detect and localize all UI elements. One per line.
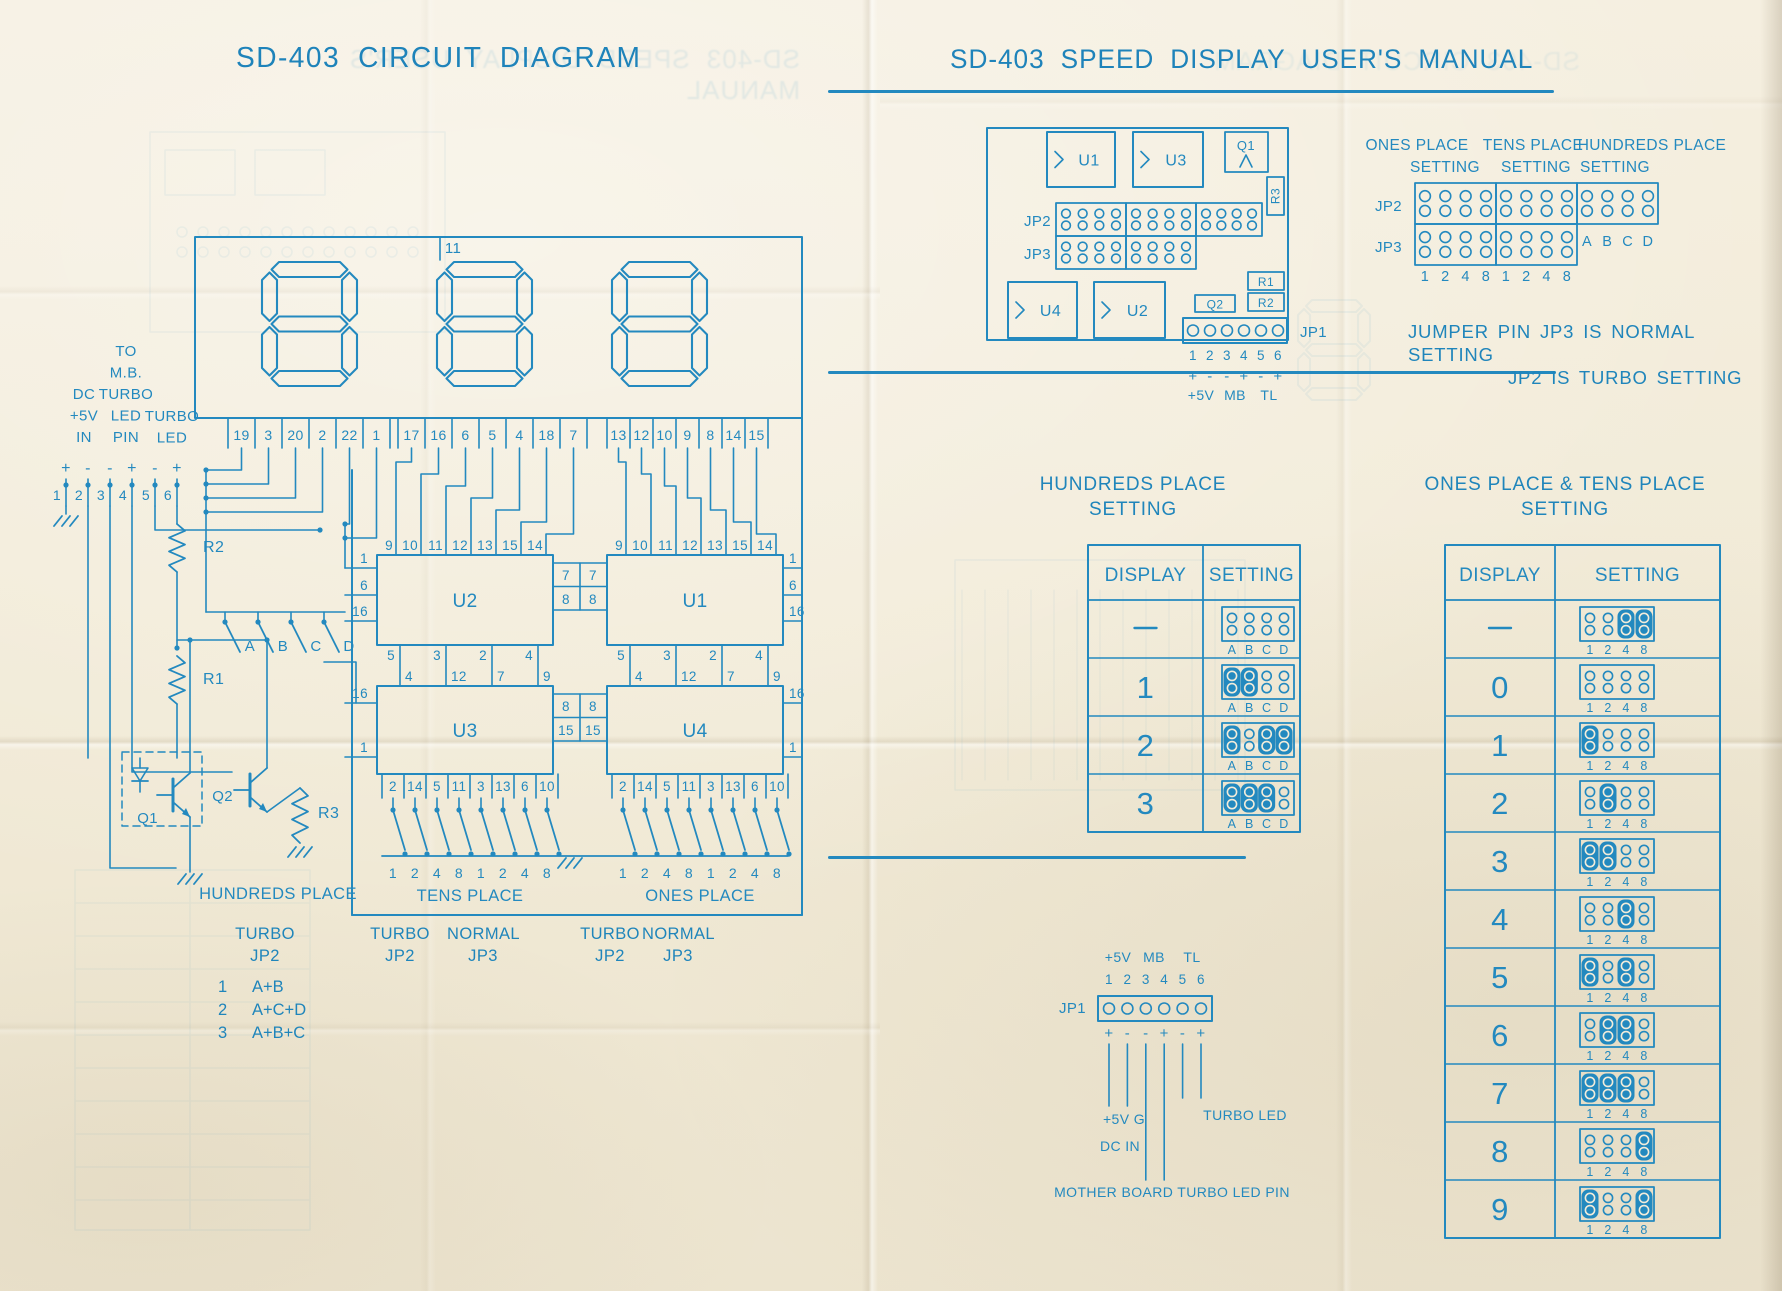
junction-dot bbox=[63, 482, 68, 487]
ic-pin-number: 3 bbox=[477, 779, 485, 794]
pin-hole bbox=[1062, 254, 1071, 263]
pin-hole bbox=[1440, 205, 1451, 216]
component-label-r2: R2 bbox=[203, 539, 224, 556]
pin-hole bbox=[1460, 191, 1471, 202]
jp1d-5vg-label: +5V G bbox=[1103, 1111, 1145, 1127]
pin-bit-label: C bbox=[1262, 759, 1271, 773]
map-header: SETTING bbox=[1410, 159, 1480, 176]
jp1d-polarity: - bbox=[1180, 1025, 1185, 1042]
shape bbox=[546, 448, 574, 555]
board-ic-label: U4 bbox=[1040, 303, 1061, 320]
shape bbox=[612, 327, 627, 376]
outline bbox=[1056, 203, 1126, 236]
display-digit: 3 bbox=[1491, 844, 1509, 879]
diagram-label: LED bbox=[111, 408, 141, 425]
jp1d-pin-number: 1 bbox=[1105, 972, 1113, 987]
shape bbox=[342, 273, 357, 322]
map-abcd-label: B bbox=[1602, 234, 1612, 250]
ic-pin-number: 12 bbox=[452, 538, 468, 553]
outline bbox=[1580, 781, 1654, 815]
pin-hole bbox=[1501, 205, 1512, 216]
display-digit: 6 bbox=[1491, 1018, 1509, 1053]
pin-bit-label: A bbox=[1228, 759, 1237, 773]
pin-bit-label: 4 bbox=[1622, 1165, 1629, 1179]
pin-bit-label: 2 bbox=[1604, 1049, 1611, 1063]
pin-hole bbox=[1639, 800, 1648, 809]
board-jp1-polarity: + bbox=[1273, 368, 1282, 385]
pin-bit-label: A bbox=[1228, 643, 1237, 657]
pin-hole bbox=[1622, 205, 1633, 216]
pin-hole bbox=[1159, 1003, 1170, 1014]
board-layout-diagram: U1U3U4U2Q1R3JP2JP3Q2R1R2JP1123456+--+-++… bbox=[987, 128, 1327, 403]
display-digit: 9 bbox=[1491, 1192, 1509, 1227]
pin-hole bbox=[1202, 221, 1211, 230]
pin-hole bbox=[1062, 209, 1071, 218]
jp1d-polarity: - bbox=[1125, 1025, 1130, 1042]
junction-dot bbox=[174, 645, 179, 650]
switch-bit-label: 1 bbox=[707, 865, 715, 881]
pin-bit-label: C bbox=[1262, 817, 1271, 831]
display-digit: 4 bbox=[1491, 902, 1509, 937]
pin-hole bbox=[1078, 242, 1087, 251]
shape bbox=[517, 273, 532, 322]
jp1d-label: JP1 bbox=[1059, 1000, 1086, 1017]
pin-bit-label: D bbox=[1279, 643, 1288, 657]
display-pin-number: 22 bbox=[341, 427, 357, 443]
pin-hole bbox=[345, 227, 355, 237]
connector-pin-number: 4 bbox=[119, 487, 127, 503]
pin-hole bbox=[1262, 684, 1271, 693]
pin-bit-label: 2 bbox=[1604, 817, 1611, 831]
ic-pin-number: 6 bbox=[521, 779, 529, 794]
diagram-label: TURBO bbox=[99, 386, 154, 403]
pin-hole bbox=[219, 247, 229, 257]
wire bbox=[54, 516, 62, 526]
jp1d-pin-number: 2 bbox=[1123, 972, 1131, 987]
diagram-label: +5V bbox=[70, 408, 98, 425]
pin-hole bbox=[1639, 787, 1648, 796]
board-jp1-polarity: - bbox=[1207, 368, 1212, 385]
pin-bit-label: 2 bbox=[1604, 1223, 1611, 1237]
shape bbox=[1306, 344, 1362, 356]
pin-hole bbox=[324, 227, 334, 237]
diagram-label: PIN bbox=[113, 429, 139, 446]
pin-hole bbox=[1217, 221, 1226, 230]
wire bbox=[296, 847, 304, 857]
pin-hole bbox=[1239, 325, 1250, 336]
pin-bit-label: 2 bbox=[1604, 933, 1611, 947]
wire bbox=[667, 810, 679, 850]
board-jp1-polarity: + bbox=[1239, 368, 1248, 385]
ic-pin-number: 6 bbox=[751, 779, 759, 794]
shape bbox=[692, 273, 707, 322]
map-bit-label: 4 bbox=[1542, 269, 1550, 285]
display-pin-number: 20 bbox=[287, 427, 303, 443]
wire bbox=[304, 847, 312, 857]
pin-hole bbox=[1639, 845, 1648, 854]
pin-hole bbox=[1481, 191, 1492, 202]
pin-hole bbox=[1602, 205, 1613, 216]
pin-hole bbox=[1585, 1032, 1594, 1041]
pin-hole bbox=[1585, 626, 1594, 635]
pin-hole bbox=[1585, 1135, 1594, 1144]
pin-hole bbox=[303, 227, 313, 237]
pin-hole bbox=[1639, 1032, 1648, 1041]
ic-pin-number: 15 bbox=[585, 723, 601, 738]
diagram-artwork-layer: 111932022211716654187131210981415DC+5VIN… bbox=[0, 0, 1782, 1291]
jp1d-polarity: + bbox=[1196, 1025, 1205, 1042]
pin-hole bbox=[1062, 242, 1071, 251]
shape bbox=[206, 448, 269, 484]
pin-hole bbox=[1521, 191, 1532, 202]
shape bbox=[132, 768, 148, 781]
wire bbox=[525, 810, 537, 850]
outline bbox=[1577, 183, 1658, 224]
display-pin-number: 4 bbox=[515, 427, 523, 443]
component-label-r1: R1 bbox=[203, 671, 224, 688]
switch-bit-label: 4 bbox=[751, 865, 759, 881]
shape bbox=[169, 656, 185, 704]
pin-hole bbox=[1222, 325, 1233, 336]
diagram-label: LED bbox=[157, 430, 187, 447]
outline bbox=[1126, 236, 1196, 269]
pin-hole bbox=[1585, 613, 1594, 622]
wire bbox=[291, 622, 306, 652]
ic-pin-number: 7 bbox=[497, 669, 505, 684]
pin-hole bbox=[1585, 1019, 1594, 1028]
shape bbox=[345, 448, 350, 524]
outline bbox=[1056, 236, 1126, 269]
switch-bit-label: 2 bbox=[411, 865, 419, 881]
table-header: DISPLAY bbox=[1105, 565, 1187, 586]
pin-hole bbox=[1621, 671, 1630, 680]
board-ic-label: U1 bbox=[1078, 153, 1099, 170]
switch-bit-label: 8 bbox=[773, 865, 781, 881]
board-jp1-net: MB bbox=[1224, 387, 1246, 403]
pin-hole bbox=[1460, 205, 1471, 216]
pin-hole bbox=[1420, 246, 1431, 257]
outline bbox=[1580, 1013, 1654, 1047]
pin-bit-label: 8 bbox=[1640, 759, 1647, 773]
board-jp1-pin: 3 bbox=[1223, 348, 1231, 363]
shape bbox=[447, 371, 523, 386]
pin-hole bbox=[1078, 221, 1087, 230]
table-header: SETTING bbox=[1209, 565, 1294, 586]
board-jp1-net: +5V bbox=[1188, 387, 1215, 403]
pin-hole bbox=[240, 247, 250, 257]
outline bbox=[165, 150, 235, 195]
pin-hole bbox=[1639, 1090, 1648, 1099]
wire bbox=[481, 810, 493, 850]
map-bit-label: 1 bbox=[1421, 269, 1429, 285]
map-bit-label: 8 bbox=[1482, 269, 1490, 285]
map-bit-label: 1 bbox=[1502, 269, 1510, 285]
wire bbox=[689, 810, 701, 850]
outline bbox=[255, 150, 325, 195]
pin-bit-label: 2 bbox=[1604, 991, 1611, 1005]
ic-label: U2 bbox=[452, 591, 477, 612]
ic-pin-number: 10 bbox=[632, 538, 648, 553]
shape bbox=[262, 327, 277, 376]
pin-hole bbox=[1279, 787, 1288, 796]
pin-bit-label: 8 bbox=[1640, 817, 1647, 831]
pin-bit-label: 4 bbox=[1622, 643, 1629, 657]
pin-hole bbox=[1148, 242, 1157, 251]
shape bbox=[272, 262, 348, 277]
pin-hole bbox=[1603, 729, 1612, 738]
outline bbox=[1580, 665, 1654, 699]
wire bbox=[70, 516, 78, 526]
switch-bit-label: 4 bbox=[663, 865, 671, 881]
pin-bit-label: 2 bbox=[1604, 759, 1611, 773]
map-bit-label: 4 bbox=[1461, 269, 1469, 285]
pin-hole bbox=[1582, 191, 1593, 202]
board-jp1-polarity: - bbox=[1258, 368, 1263, 385]
pin-bit-label: D bbox=[1279, 759, 1288, 773]
jp1d-turbo-led-label: TURBO LED bbox=[1203, 1107, 1287, 1123]
pin-hole bbox=[1262, 626, 1271, 635]
pin-hole bbox=[1273, 325, 1284, 336]
pin-hole bbox=[1262, 671, 1271, 680]
polarity-sign: + bbox=[127, 460, 137, 477]
display-digit: 7 bbox=[1491, 1076, 1509, 1111]
ic-pin-number: 4 bbox=[405, 669, 413, 684]
pin-hole bbox=[1585, 916, 1594, 925]
pin-hole bbox=[1501, 191, 1512, 202]
wire bbox=[288, 847, 296, 857]
pin-hole bbox=[1095, 254, 1104, 263]
pin-hole bbox=[1621, 858, 1630, 867]
pin-hole bbox=[1279, 684, 1288, 693]
shape bbox=[272, 371, 348, 386]
board-jp1-label: JP1 bbox=[1300, 324, 1327, 341]
pin-bit-label: A bbox=[1228, 701, 1237, 715]
ic-pin-number: 15 bbox=[732, 538, 748, 553]
map-jp3-label: JP3 bbox=[1375, 239, 1402, 256]
ic-pin-number: 7 bbox=[589, 568, 597, 583]
pin-bit-label: 8 bbox=[1640, 1049, 1647, 1063]
switch-bit-label: 4 bbox=[521, 865, 529, 881]
pin-hole bbox=[1621, 1135, 1630, 1144]
board-jp1-pin: 4 bbox=[1240, 348, 1248, 363]
component-label-q1: Q1 bbox=[137, 810, 158, 827]
pin-bit-label: 4 bbox=[1622, 991, 1629, 1005]
pin-hole bbox=[1602, 191, 1613, 202]
pin-hole bbox=[1603, 916, 1612, 925]
ic-pin-number: 14 bbox=[757, 538, 773, 553]
ic-pin-number: 14 bbox=[637, 779, 653, 794]
shape bbox=[1240, 155, 1252, 167]
board-ic-label: U2 bbox=[1127, 303, 1148, 320]
pin-bit-label: B bbox=[1245, 701, 1254, 715]
pin-hole bbox=[1621, 742, 1630, 751]
pin-hole bbox=[1177, 1003, 1188, 1014]
pin-hole bbox=[1112, 242, 1121, 251]
display-pin-number: 15 bbox=[748, 427, 764, 443]
outline bbox=[1496, 224, 1577, 265]
pin-hole bbox=[1132, 242, 1141, 251]
pin-hole bbox=[1585, 671, 1594, 680]
connector-pin-number: 2 bbox=[75, 487, 83, 503]
switch-bit-label: 4 bbox=[433, 865, 441, 881]
pin-hole bbox=[1603, 1206, 1612, 1215]
wire bbox=[623, 810, 635, 850]
switch-bit-label: 1 bbox=[477, 865, 485, 881]
jp1d-pin-number: 5 bbox=[1179, 972, 1187, 987]
pin-hole bbox=[1639, 742, 1648, 751]
pin-hole bbox=[387, 227, 397, 237]
board-jp1-pin: 5 bbox=[1257, 348, 1265, 363]
shape bbox=[182, 808, 190, 817]
map-header: HUNDREDS PLACE bbox=[1578, 137, 1727, 154]
display-pin-number: 2 bbox=[318, 427, 326, 443]
pin-hole bbox=[1182, 221, 1191, 230]
pin-hole bbox=[1095, 209, 1104, 218]
pin-hole bbox=[408, 227, 418, 237]
wire bbox=[755, 810, 767, 850]
display-pin-number: 14 bbox=[725, 427, 741, 443]
pin-hole bbox=[1279, 800, 1288, 809]
jp1d-pin-number: 4 bbox=[1160, 972, 1168, 987]
ic-pin-number: 1 bbox=[789, 551, 797, 566]
pin-bit-label: 4 bbox=[1622, 1107, 1629, 1121]
shape bbox=[272, 317, 348, 332]
ic-pin-number: 16 bbox=[789, 686, 805, 701]
board-jp1-net: TL bbox=[1260, 387, 1277, 403]
pin-hole bbox=[1501, 246, 1512, 257]
shape bbox=[262, 273, 277, 322]
pin-hole bbox=[1245, 626, 1254, 635]
board-ic-label: U3 bbox=[1165, 153, 1186, 170]
connector-pin-number: 1 bbox=[53, 487, 61, 503]
wire bbox=[393, 810, 405, 850]
pin-hole bbox=[1279, 671, 1288, 680]
ic-pin-number: 8 bbox=[562, 699, 570, 714]
board-jp3-label: JP3 bbox=[1024, 246, 1051, 263]
shape bbox=[1055, 152, 1063, 168]
pin-hole bbox=[1585, 1148, 1594, 1157]
shape bbox=[622, 262, 698, 277]
pin-hole bbox=[177, 247, 187, 257]
pin-hole bbox=[1639, 858, 1648, 867]
jp1d-polarity: + bbox=[1104, 1025, 1113, 1042]
ic-pin-number: 7 bbox=[562, 568, 570, 583]
ic-pin-number: 2 bbox=[479, 648, 487, 663]
ic-pin-number: 1 bbox=[789, 740, 797, 755]
pin-bit-label: 4 bbox=[1622, 1223, 1629, 1237]
ic-pin-number: 13 bbox=[725, 779, 741, 794]
connector-pin-number: 5 bbox=[142, 487, 150, 503]
switch-letter: B bbox=[278, 638, 288, 655]
pin-hole bbox=[1639, 974, 1648, 983]
pin-hole bbox=[1603, 961, 1612, 970]
shape bbox=[517, 327, 532, 376]
ic-pin-number: 6 bbox=[789, 578, 797, 593]
pin-hole bbox=[1603, 613, 1612, 622]
pin-hole bbox=[261, 247, 271, 257]
map-header: SETTING bbox=[1580, 159, 1650, 176]
pin-hole bbox=[1095, 221, 1104, 230]
pin-hole bbox=[303, 247, 313, 257]
ic-pin-number: 9 bbox=[385, 538, 393, 553]
outline bbox=[1445, 545, 1720, 1238]
pin-hole bbox=[1585, 903, 1594, 912]
pin-bit-label: 1 bbox=[1586, 759, 1593, 773]
jp1d-motherboard-label: MOTHER BOARD TURBO LED PIN bbox=[1054, 1184, 1290, 1200]
pin-hole bbox=[1562, 191, 1573, 202]
ic-pin-number: 3 bbox=[433, 648, 441, 663]
pin-hole bbox=[1603, 903, 1612, 912]
pin-hole bbox=[1622, 191, 1633, 202]
display-pin-number: 3 bbox=[264, 427, 272, 443]
board-r3-label: R3 bbox=[1269, 188, 1283, 204]
ic-pin-number: 11 bbox=[452, 779, 467, 794]
jp1d-polarity: + bbox=[1160, 1025, 1169, 1042]
ic-pin-number: 5 bbox=[617, 648, 625, 663]
ic-pin-number: 15 bbox=[558, 723, 574, 738]
pin-hole bbox=[1521, 246, 1532, 257]
pin-bit-label: 1 bbox=[1586, 643, 1593, 657]
pin-bit-label: 1 bbox=[1586, 701, 1593, 715]
pin-hole bbox=[1621, 800, 1630, 809]
ic-pin-number: 2 bbox=[709, 648, 717, 663]
pin-hole bbox=[1245, 742, 1254, 751]
ic-pin-number: 4 bbox=[755, 648, 763, 663]
pin-hole bbox=[1132, 254, 1141, 263]
jp1d-pin-number: 3 bbox=[1142, 972, 1150, 987]
junction-dot bbox=[174, 482, 179, 487]
map-bit-label: 2 bbox=[1522, 269, 1530, 285]
map-bit-label: 8 bbox=[1563, 269, 1571, 285]
pin-hole bbox=[1603, 1135, 1612, 1144]
pin-bit-label: 2 bbox=[1604, 1107, 1611, 1121]
pin-hole bbox=[1541, 232, 1552, 243]
pin-hole bbox=[1501, 232, 1512, 243]
pin-hole bbox=[1621, 1193, 1630, 1202]
ic-pin-number: 5 bbox=[433, 779, 441, 794]
map-abcd-label: C bbox=[1622, 234, 1633, 250]
shape bbox=[206, 448, 242, 470]
ic-pin-number: 4 bbox=[635, 669, 643, 684]
pin-hole bbox=[1217, 209, 1226, 218]
wire bbox=[574, 858, 582, 868]
pin-hole bbox=[1541, 191, 1552, 202]
pin-hole bbox=[1256, 325, 1267, 336]
wire bbox=[711, 810, 723, 850]
ic-pin-number: 11 bbox=[428, 538, 443, 553]
board-jp1-polarity: + bbox=[1188, 368, 1197, 385]
pin-hole bbox=[324, 247, 334, 257]
ic-pin-number: 14 bbox=[527, 538, 543, 553]
polarity-sign: + bbox=[61, 460, 71, 477]
shape bbox=[622, 317, 698, 332]
pin-hole bbox=[1420, 191, 1431, 202]
pin-hole bbox=[1227, 613, 1236, 622]
map-jp2-label: JP2 bbox=[1375, 198, 1402, 215]
display-pin-number: 6 bbox=[461, 427, 469, 443]
shape bbox=[1358, 353, 1370, 391]
pin-hole bbox=[1603, 742, 1612, 751]
jumper-pin-map: ONES PLACESETTINGTENS PLACESETTINGHUNDRE… bbox=[1365, 137, 1726, 285]
junction-dot bbox=[317, 527, 322, 532]
pin-bit-label: C bbox=[1262, 643, 1271, 657]
jp1d-dc-in-label: DC IN bbox=[1100, 1138, 1140, 1154]
pin-hole bbox=[1621, 1148, 1630, 1157]
pin-hole bbox=[1095, 242, 1104, 251]
shape bbox=[612, 273, 627, 322]
pin-hole bbox=[198, 247, 208, 257]
pin-hole bbox=[345, 247, 355, 257]
